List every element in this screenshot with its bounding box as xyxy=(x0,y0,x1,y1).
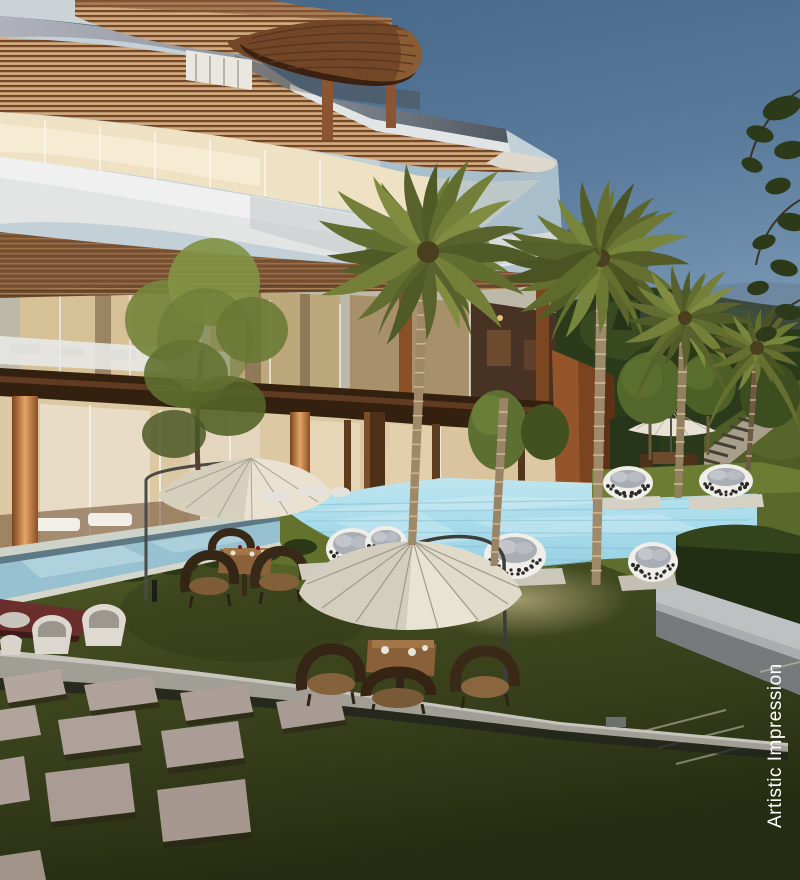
svg-text:Artistic Impression: Artistic Impression xyxy=(765,663,786,828)
